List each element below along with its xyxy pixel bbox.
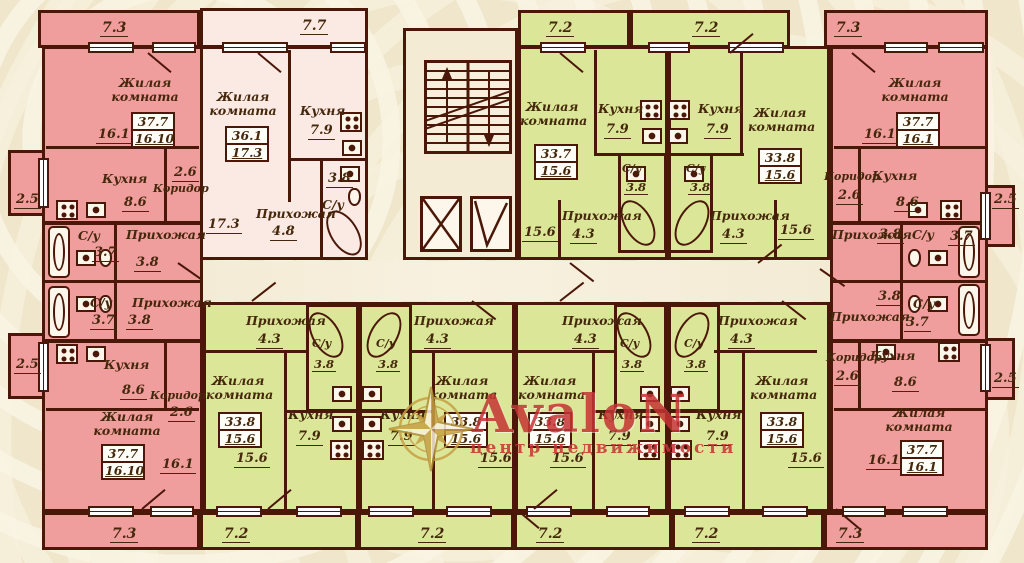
window <box>330 42 366 53</box>
area-total: 37.7 <box>133 114 173 131</box>
washbasin-icon <box>928 250 948 266</box>
balcony-area: 7.3 <box>834 20 862 37</box>
area-box: 37.7 16.10 <box>131 112 175 148</box>
room-area: 4.3 <box>720 228 747 244</box>
area-total: 33.8 <box>446 414 486 431</box>
wall <box>664 153 667 253</box>
area-living: 16.10 <box>103 463 143 478</box>
room-area: 3.7 <box>92 246 119 262</box>
room-area: 8.6 <box>120 384 147 400</box>
window <box>446 506 492 517</box>
elevator-door-icon <box>473 199 509 249</box>
room-label-living: Жилая комната <box>884 406 954 435</box>
window <box>980 192 991 240</box>
area-box: 33.8 15.6 <box>760 412 804 448</box>
kitchen-sink-icon <box>362 416 382 432</box>
room-area: 3.8 <box>688 181 712 195</box>
area-total: 33.8 <box>530 414 570 431</box>
window <box>684 506 730 517</box>
room-area: 7.9 <box>606 430 633 446</box>
wall <box>710 153 713 253</box>
room-label-hall: Прихожая <box>718 314 798 328</box>
bathtub-icon <box>958 284 980 336</box>
wall <box>513 302 517 514</box>
stove-icon <box>362 440 384 460</box>
wall <box>664 304 667 412</box>
room-area: 3.8 <box>684 358 708 372</box>
washbasin-icon <box>332 386 352 402</box>
wall <box>618 153 621 253</box>
window <box>152 42 196 53</box>
stove-icon <box>330 440 352 460</box>
wall <box>618 250 713 253</box>
room-label-hall: Прихожая <box>830 310 910 324</box>
room-area: 3.7 <box>904 316 931 332</box>
room-label-wc: С/у <box>686 163 705 176</box>
area-box: 33.8 15.6 <box>528 412 572 448</box>
balcony-area: 2.5 <box>14 358 41 374</box>
toilet-icon <box>908 249 921 267</box>
stove-icon <box>638 440 660 460</box>
room-area: 8.6 <box>894 196 921 212</box>
wall <box>206 350 306 353</box>
wall <box>714 350 817 353</box>
room-label-wc: С/у <box>90 296 112 310</box>
room-label-kitchen: Кухня <box>102 172 147 186</box>
stove-icon <box>668 100 690 120</box>
room-label-kitchen: Кухня <box>870 349 915 363</box>
room-label-wc: С/у <box>78 229 100 243</box>
area-living: 16.1 <box>902 459 942 474</box>
room-label-corridor: Коридор <box>150 390 206 403</box>
room-area: 7.9 <box>604 123 631 139</box>
area-total: 33.8 <box>760 150 800 167</box>
area-total: 33.8 <box>762 414 802 431</box>
window <box>368 506 414 517</box>
room-area: 2.6 <box>172 166 199 182</box>
window <box>88 506 134 517</box>
area-total: 33.8 <box>220 414 260 431</box>
room-area: 7.9 <box>296 430 323 446</box>
wall <box>42 280 203 283</box>
room-label-wc: С/у <box>620 338 639 351</box>
room-area: 3.8 <box>126 314 153 330</box>
window <box>884 42 928 53</box>
room-label-hall: Прихожая <box>256 207 336 221</box>
corridor-hallway <box>203 261 830 301</box>
washbasin-icon <box>670 386 690 402</box>
room-area: 2.6 <box>836 189 863 205</box>
room-area: 4.3 <box>256 333 283 349</box>
stove-icon <box>938 342 960 362</box>
room-area: 7.9 <box>704 430 731 446</box>
room-area: 15.6 <box>778 224 814 240</box>
wall <box>284 352 287 512</box>
balcony-area: 7.2 <box>546 20 574 37</box>
area-total: 37.7 <box>898 114 938 131</box>
wall <box>46 146 199 149</box>
bathtub-icon <box>48 226 70 278</box>
area-living: 16.10 <box>133 131 173 146</box>
area-box: 33.8 15.6 <box>218 412 262 448</box>
area-box: 37.7 16.10 <box>101 444 145 480</box>
stove-icon <box>56 344 78 364</box>
room-area: 3.8 <box>876 290 903 306</box>
wall <box>858 146 861 224</box>
room-area: 4.3 <box>424 333 451 349</box>
room-area: 3.8 <box>134 256 161 272</box>
elevator-shaft <box>420 196 462 252</box>
area-box: 33.8 15.6 <box>444 412 488 448</box>
room-label-kitchen: Кухня <box>288 408 333 422</box>
wall <box>288 158 368 161</box>
room-label-hall: Прихожая <box>126 228 206 242</box>
room-label-hall: Прихожая <box>710 209 790 223</box>
stove-icon <box>670 440 692 460</box>
wall <box>594 153 744 156</box>
stove-icon <box>940 200 962 220</box>
balcony-area: 7.3 <box>100 20 128 37</box>
room-label-living: Жилая комната <box>880 76 950 105</box>
room-area: 3.7 <box>90 314 117 330</box>
room-area: 15.6 <box>788 452 824 468</box>
area-living: 15.6 <box>530 431 570 446</box>
room-area: 15.6 <box>522 226 558 242</box>
wall <box>742 352 745 512</box>
room-area: 3.7 <box>948 230 975 246</box>
balcony-area: 7.7 <box>300 18 328 35</box>
room-area: 16.1 <box>96 128 132 144</box>
room-area: 2.6 <box>834 370 861 386</box>
room-area: 3.8 <box>376 358 400 372</box>
area-box: 36.1 17.3 <box>225 126 269 162</box>
room-label-kitchen: Кухня <box>598 102 643 116</box>
wall <box>356 304 359 412</box>
balcony-area: 7.2 <box>536 526 564 543</box>
area-box: 37.7 16.1 <box>900 440 944 476</box>
area-living: 15.6 <box>220 431 260 446</box>
room-label-living: Жилая комната <box>518 374 582 403</box>
window <box>762 506 808 517</box>
kitchen-sink-icon <box>670 416 690 432</box>
room-area: 3.8 <box>312 358 336 372</box>
room-area: 4.3 <box>572 333 599 349</box>
room-label-kitchen: Кухня <box>872 169 917 183</box>
room-area: 4.3 <box>728 333 755 349</box>
room-area: 8.6 <box>892 376 919 392</box>
room-label-kitchen: Кухня <box>380 408 425 422</box>
area-living: 15.6 <box>536 163 576 178</box>
room-label-living: Жилая комната <box>748 106 812 135</box>
room-area: 3.8 <box>624 181 648 195</box>
room-label-living: Жилая комната <box>750 374 814 403</box>
kitchen-sink-icon <box>332 416 352 432</box>
washbasin-icon <box>640 386 660 402</box>
room-area: 7.9 <box>704 123 731 139</box>
room-area: 7.9 <box>308 124 335 140</box>
balcony-area: 7.2 <box>222 526 250 543</box>
balcony-area: 2.5 <box>14 193 41 209</box>
area-total: 36.1 <box>227 128 267 145</box>
area-box: 33.8 15.6 <box>758 148 802 184</box>
area-box: 33.7 15.6 <box>534 144 578 180</box>
staircase-arrows <box>427 63 509 151</box>
area-living: 16.1 <box>898 131 938 146</box>
room-area: 17.3 <box>206 218 242 234</box>
room-area: 16.1 <box>862 128 898 144</box>
window <box>648 42 690 53</box>
room-label-living: Жилая комната <box>110 76 180 105</box>
floor-plan: 7.3 Жилая комната 37.7 16.10 16.1 Кухня … <box>0 0 1024 563</box>
wall <box>592 352 595 512</box>
room-label-corridor: Коридор <box>153 183 209 196</box>
balcony-area: 7.3 <box>836 526 864 543</box>
balcony-area: 2.5 <box>992 193 1019 209</box>
window <box>150 506 194 517</box>
window <box>980 344 991 392</box>
room-label-kitchen: Кухня <box>598 408 643 422</box>
area-living: 15.6 <box>762 431 802 446</box>
room-area: 8.6 <box>122 196 149 212</box>
room-area: 4.3 <box>570 228 597 244</box>
room-label-kitchen: Кухня <box>300 104 345 118</box>
wall <box>412 350 515 353</box>
room-label-wc: С/у <box>312 338 331 351</box>
room-area: 3.8 <box>620 358 644 372</box>
wall <box>558 200 561 258</box>
room-label-hall: Прихожая <box>414 314 494 328</box>
room-area: 7.9 <box>388 430 415 446</box>
room-label-living: Жилая комната <box>208 90 278 119</box>
washbasin-icon <box>362 386 382 402</box>
area-living: 17.3 <box>227 145 267 160</box>
window <box>902 506 948 517</box>
room-label-kitchen: Кухня <box>696 408 741 422</box>
balcony-area: 7.3 <box>110 526 138 543</box>
staircase <box>424 60 512 154</box>
room-area: 15.6 <box>550 452 586 468</box>
kitchen-sink-icon <box>642 128 662 144</box>
balcony-area: 7.2 <box>692 20 720 37</box>
room-area: 16.1 <box>866 454 902 470</box>
room-label-kitchen: Кухня <box>698 102 743 116</box>
kitchen-sink-icon <box>668 128 688 144</box>
bathtub-icon <box>48 286 70 338</box>
room-label-hall: Прихожая <box>246 314 326 328</box>
room-label-wc: С/у <box>912 228 934 242</box>
elevator-cross-icon <box>423 199 459 249</box>
window <box>540 42 586 53</box>
toilet-icon <box>348 188 361 206</box>
balcony-area: 2.5 <box>992 372 1019 388</box>
room-label-hall: Прихожая <box>562 209 642 223</box>
kitchen-sink-icon <box>86 202 106 218</box>
room-label-wc: С/у <box>913 297 935 311</box>
room-label-wc: С/у <box>622 163 641 176</box>
window <box>216 506 262 517</box>
window <box>88 42 134 53</box>
balcony-area: 7.2 <box>418 526 446 543</box>
room-area: 15.6 <box>234 452 270 468</box>
elevator-shaft <box>470 196 512 252</box>
area-box: 37.7 16.1 <box>896 112 940 148</box>
room-area: 15.6 <box>478 452 514 468</box>
room-label-living: Жилая комната <box>520 100 584 129</box>
area-living: 15.6 <box>760 167 800 182</box>
room-label-living: Жилая комната <box>92 410 162 439</box>
window <box>938 42 984 53</box>
area-total: 33.7 <box>536 146 576 163</box>
room-area: 3.8 <box>877 228 904 244</box>
wall <box>515 350 615 353</box>
room-label-living: Жилая комната <box>430 374 494 403</box>
window <box>842 506 886 517</box>
balcony-area: 7.2 <box>692 526 720 543</box>
room-label-hall: Прихожая <box>132 296 212 310</box>
room-label-wc: С/у <box>376 338 395 351</box>
stove-icon <box>56 200 78 220</box>
room-area: 4.8 <box>270 225 297 241</box>
kitchen-sink-icon <box>86 346 106 362</box>
wall <box>830 280 988 283</box>
room-area: 3.8 <box>326 172 353 188</box>
wall <box>594 50 597 156</box>
room-label-wc: С/у <box>684 338 703 351</box>
area-total: 37.7 <box>902 442 942 459</box>
room-label-living: Жилая комната <box>206 374 270 403</box>
room-area: 16.1 <box>160 458 196 474</box>
area-total: 37.7 <box>103 446 143 463</box>
window <box>222 42 288 53</box>
window <box>606 506 650 517</box>
window <box>296 506 342 517</box>
room-label-hall: Прихожая <box>562 314 642 328</box>
area-living: 15.6 <box>446 431 486 446</box>
wall <box>288 50 291 202</box>
room-label-kitchen: Кухня <box>104 358 149 372</box>
room-area: 2.6 <box>168 406 195 422</box>
kitchen-sink-icon <box>342 140 362 156</box>
